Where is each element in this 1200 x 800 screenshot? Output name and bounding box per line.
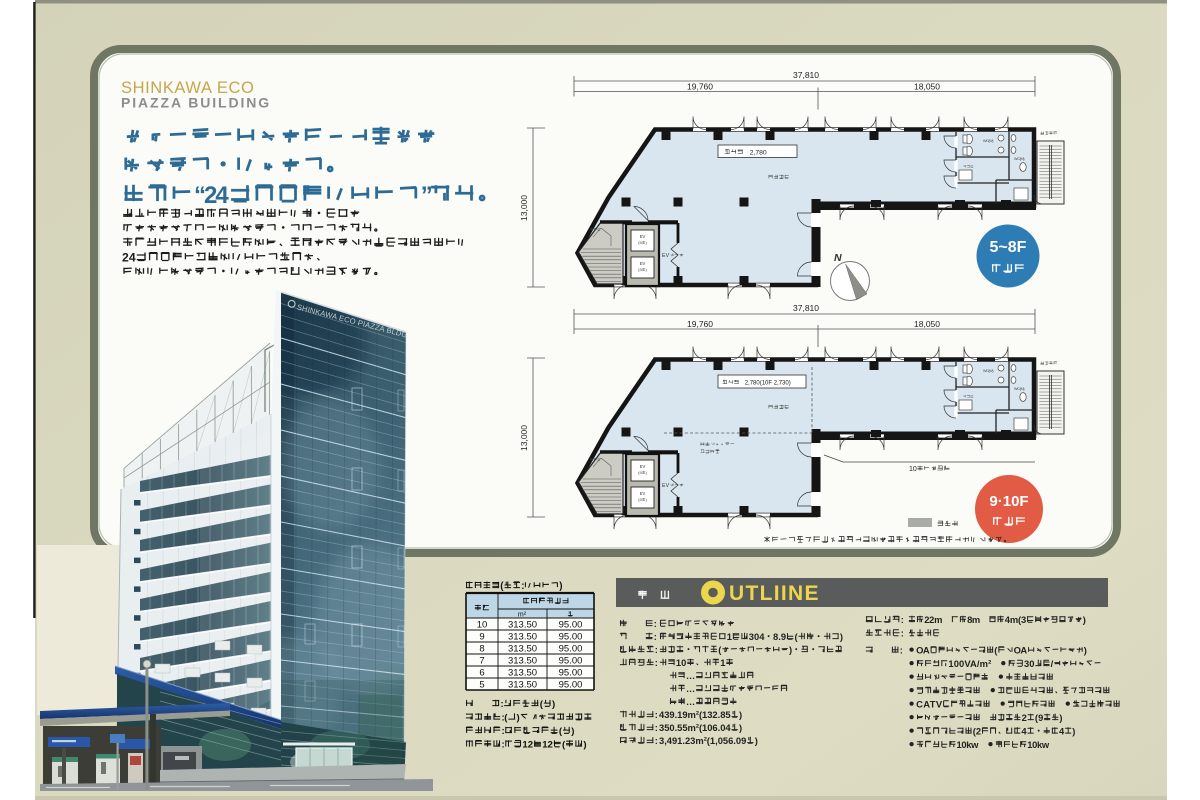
svg-text:): ) bbox=[840, 631, 843, 642]
svg-text::: : bbox=[654, 618, 657, 629]
svg-text::: : bbox=[901, 614, 904, 625]
svg-text:95.00: 95.00 bbox=[559, 620, 583, 631]
svg-text:13,000: 13,000 bbox=[519, 425, 529, 451]
svg-text:): ) bbox=[559, 581, 562, 592]
svg-text:95.00: 95.00 bbox=[559, 656, 583, 667]
svg-text:): ) bbox=[571, 726, 574, 737]
svg-text:UTLIINE: UTLIINE bbox=[729, 582, 820, 605]
svg-text:EV: EV bbox=[640, 491, 646, 496]
svg-text:100VA/m²: 100VA/m² bbox=[948, 658, 991, 669]
svg-text:5~8F: 5~8F bbox=[990, 239, 1027, 256]
svg-text:): ) bbox=[739, 722, 742, 733]
svg-text:24: 24 bbox=[122, 251, 136, 265]
svg-text:”: ” bbox=[421, 182, 433, 209]
svg-text:22m: 22m bbox=[924, 614, 942, 625]
svg-text:2: 2 bbox=[1022, 712, 1027, 723]
svg-text::: : bbox=[655, 722, 658, 733]
svg-text:m²: m² bbox=[518, 612, 527, 619]
svg-text:19,760: 19,760 bbox=[687, 319, 713, 329]
svg-text:313.50: 313.50 bbox=[508, 656, 537, 667]
svg-text:OA: OA bbox=[1014, 645, 1028, 656]
svg-text:“24: “24 bbox=[194, 182, 229, 209]
svg-text:4: 4 bbox=[1059, 726, 1065, 737]
svg-text::: : bbox=[655, 735, 658, 746]
svg-text:313.50: 313.50 bbox=[508, 668, 537, 679]
svg-text:9·10F: 9·10F bbox=[989, 493, 1028, 510]
svg-text::: : bbox=[654, 631, 657, 642]
svg-text:8m: 8m bbox=[967, 614, 980, 625]
svg-text::: : bbox=[501, 699, 504, 710]
svg-text::: : bbox=[655, 709, 658, 720]
svg-text:(2: (2 bbox=[973, 726, 981, 737]
svg-text:2,780: 2,780 bbox=[750, 150, 767, 157]
svg-text:439.19m²(132.85: 439.19m²(132.85 bbox=[659, 709, 731, 720]
svg-text:…: … bbox=[686, 670, 695, 681]
svg-text:18,050: 18,050 bbox=[914, 81, 940, 91]
svg-text:1: 1 bbox=[727, 631, 732, 642]
svg-text:95.00: 95.00 bbox=[559, 644, 583, 655]
svg-text:CATV: CATV bbox=[916, 699, 943, 710]
svg-text:12: 12 bbox=[542, 740, 553, 751]
svg-text:1: 1 bbox=[720, 657, 725, 668]
svg-text:): ) bbox=[583, 740, 586, 751]
svg-text:37,810: 37,810 bbox=[793, 70, 819, 80]
svg-text:EV: EV bbox=[662, 253, 670, 259]
svg-text:2,780(10F 2,730): 2,780(10F 2,730) bbox=[745, 381, 791, 387]
svg-text:): ) bbox=[1083, 614, 1086, 625]
svg-text:): ) bbox=[755, 735, 758, 746]
svg-text:5: 5 bbox=[479, 680, 484, 691]
svg-text::: : bbox=[655, 657, 658, 668]
svg-text:313.50: 313.50 bbox=[508, 680, 537, 691]
svg-text:8.9: 8.9 bbox=[773, 631, 786, 642]
svg-text::(: :( bbox=[502, 713, 509, 724]
svg-text:4m(3: 4m(3 bbox=[1005, 614, 1026, 625]
svg-text:WC(M): WC(M) bbox=[1014, 387, 1025, 391]
svg-text:30: 30 bbox=[1024, 658, 1035, 669]
svg-text:/: / bbox=[1051, 658, 1054, 669]
svg-text::: : bbox=[900, 645, 903, 656]
svg-text:OA: OA bbox=[916, 645, 930, 656]
svg-text:10: 10 bbox=[909, 466, 917, 473]
svg-text:EV: EV bbox=[640, 261, 646, 266]
svg-text:304: 304 bbox=[749, 631, 765, 642]
svg-text:): ) bbox=[739, 709, 742, 720]
svg-text::: : bbox=[502, 726, 505, 737]
svg-text:): ) bbox=[1084, 645, 1087, 656]
svg-text:10kw: 10kw bbox=[1027, 739, 1050, 750]
svg-text:EV: EV bbox=[640, 234, 646, 239]
svg-text:WC(M): WC(M) bbox=[1014, 157, 1025, 161]
svg-text::: : bbox=[901, 628, 904, 639]
svg-text:37,810: 37,810 bbox=[793, 303, 819, 313]
svg-text:350.55m²(106.04: 350.55m²(106.04 bbox=[659, 722, 731, 733]
svg-text:95.00: 95.00 bbox=[559, 668, 583, 679]
svg-text:): ) bbox=[1072, 726, 1075, 737]
svg-text:95.00: 95.00 bbox=[559, 632, 583, 643]
svg-text::: : bbox=[502, 740, 505, 751]
svg-text:9: 9 bbox=[479, 632, 484, 643]
svg-text:): ) bbox=[1059, 712, 1062, 723]
svg-text:12: 12 bbox=[522, 740, 533, 751]
svg-text:313.50: 313.50 bbox=[508, 644, 537, 655]
svg-text:10: 10 bbox=[477, 620, 488, 631]
svg-text:95.00: 95.00 bbox=[559, 680, 583, 691]
svg-text:8: 8 bbox=[479, 644, 484, 655]
svg-text:N: N bbox=[834, 252, 842, 264]
svg-text:): ) bbox=[552, 699, 555, 710]
svg-text:10: 10 bbox=[676, 657, 687, 668]
svg-text:3,491.23m²(1,056.09: 3,491.23m²(1,056.09 bbox=[659, 735, 746, 746]
svg-text:313.50: 313.50 bbox=[508, 632, 537, 643]
svg-text:): ) bbox=[517, 713, 520, 724]
svg-text:…: … bbox=[686, 683, 695, 694]
svg-text:19,760: 19,760 bbox=[687, 81, 713, 91]
svg-text::: : bbox=[655, 644, 658, 655]
svg-text:WC(W): WC(W) bbox=[983, 139, 994, 143]
svg-text::: : bbox=[521, 581, 524, 592]
svg-text:13,000: 13,000 bbox=[519, 195, 529, 221]
svg-text:10kw: 10kw bbox=[957, 739, 980, 750]
svg-text:313.50: 313.50 bbox=[508, 620, 537, 631]
svg-text:4: 4 bbox=[1021, 726, 1027, 737]
svg-text:(9: (9 bbox=[1035, 712, 1043, 723]
svg-text:EV: EV bbox=[640, 464, 646, 469]
svg-text:EV: EV bbox=[662, 483, 670, 489]
svg-text:…: … bbox=[686, 696, 695, 707]
svg-text:WC(W): WC(W) bbox=[983, 369, 994, 373]
svg-text:): ) bbox=[789, 644, 792, 655]
svg-text:18,050: 18,050 bbox=[914, 319, 940, 329]
svg-text:PIAZZA BUILDING: PIAZZA BUILDING bbox=[121, 95, 271, 111]
svg-text:7: 7 bbox=[479, 656, 484, 667]
svg-text:6: 6 bbox=[479, 668, 484, 679]
